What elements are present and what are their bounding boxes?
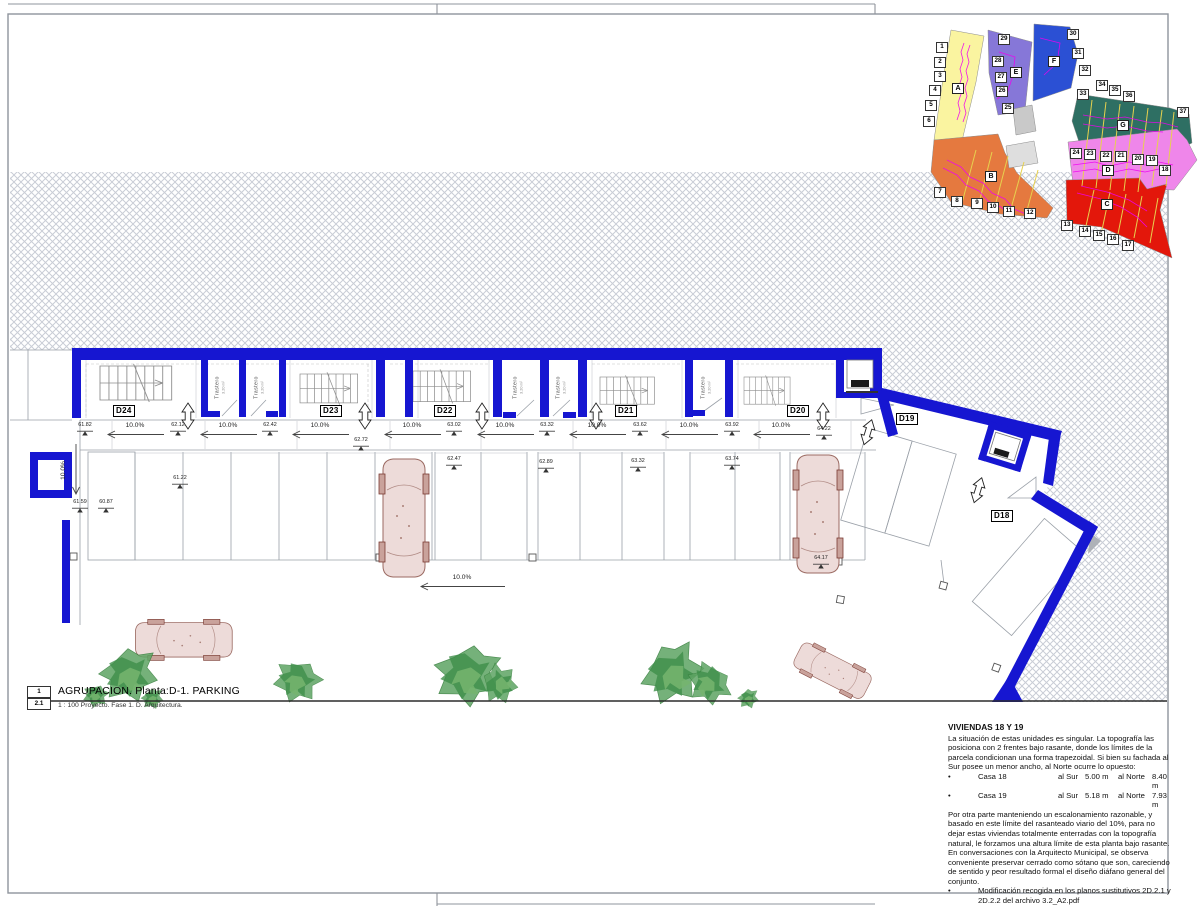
note-bullet-casa18: • Casa 18 al Sur 5.00 m al Norte 8.40 m (948, 772, 1174, 791)
notes-paragraph-1: La situación de estas unidades es singul… (948, 734, 1174, 772)
page-title: AGRUPACION. Planta:D-1. PARKING (58, 686, 240, 697)
page-subtitle: 1 : 100 Proyecto. Fase 1. D. Arquitectur… (58, 702, 240, 709)
notes-title: VIVIENDAS 18 Y 19 (948, 722, 1174, 732)
notes-paragraph-2: Por otra parte manteniendo un escalonami… (948, 810, 1174, 886)
door-arrows (182, 403, 987, 504)
note-bullet-modification: • Modificación recogida en los planos su… (948, 886, 1174, 905)
bullet-icon: • (948, 772, 978, 791)
bullet-icon: • (948, 791, 978, 810)
parked-cars (135, 455, 874, 703)
detail-number: 2.1 (27, 698, 51, 710)
sheet-number: 1 (27, 686, 51, 698)
bullet-icon: • (948, 886, 978, 905)
notes-block: VIVIENDAS 18 Y 19 La situación de estas … (948, 722, 1174, 905)
note-bullet-casa19: • Casa 19 al Sur 5.18 m al Norte 7.93 m (948, 791, 1174, 810)
drawing-sheet: D24D23D22D21D20D19D1861.8262.1262.4262.7… (0, 0, 1200, 907)
title-block: 1 2.1 AGRUPACION. Planta:D-1. PARKING 1 … (27, 686, 240, 710)
